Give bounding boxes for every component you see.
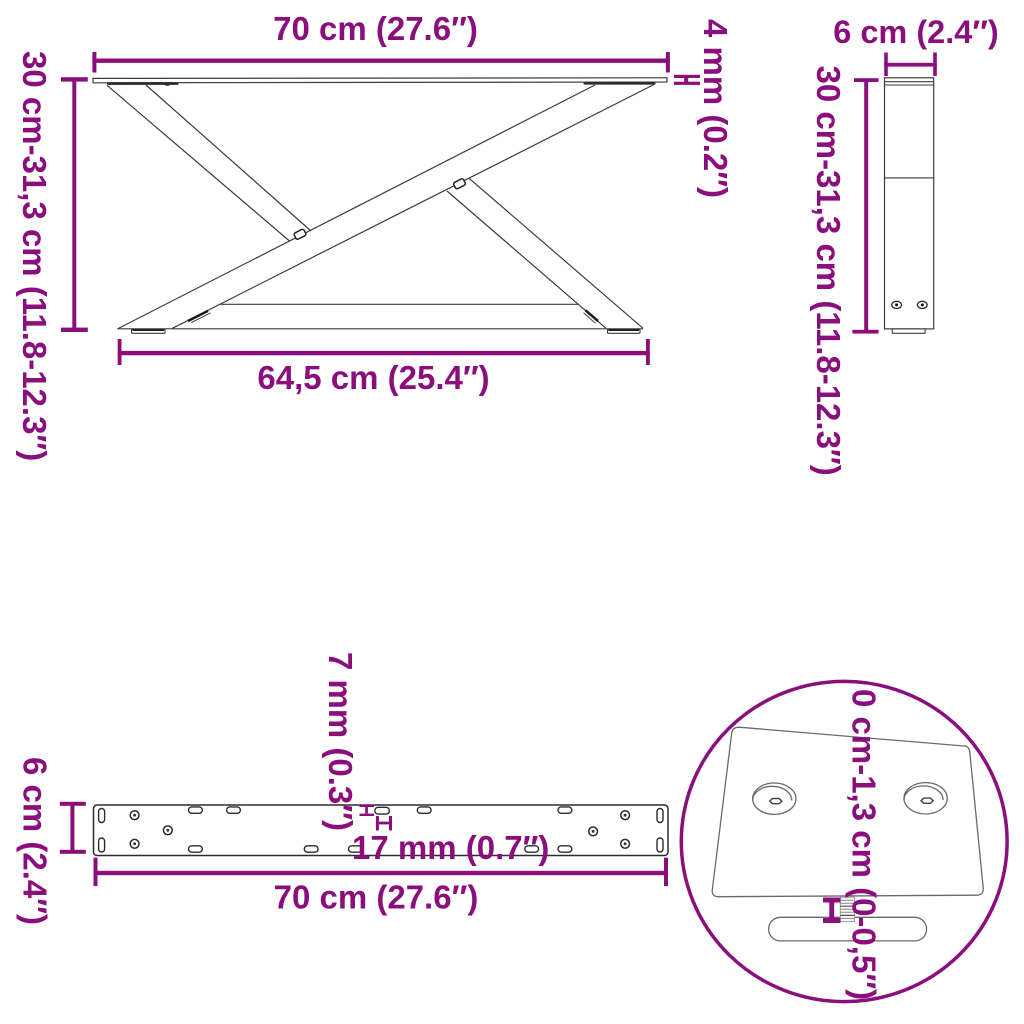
svg-text:30 cm-31,3 cm (11.8-12.3″): 30 cm-31,3 cm (11.8-12.3″) (810, 66, 847, 476)
svg-text:70 cm (27.6″): 70 cm (27.6″) (273, 10, 478, 47)
svg-text:0 cm-1,3 cm (0-0,5″): 0 cm-1,3 cm (0-0,5″) (846, 689, 883, 1000)
svg-text:6 cm (2.4″): 6 cm (2.4″) (17, 757, 54, 925)
svg-text:6 cm (2.4″): 6 cm (2.4″) (833, 14, 999, 50)
svg-text:17 mm (0.7″): 17 mm (0.7″) (352, 829, 549, 866)
svg-text:70 cm (27.6″): 70 cm (27.6″) (274, 879, 479, 916)
svg-text:64,5 cm (25.4″): 64,5 cm (25.4″) (257, 359, 489, 396)
svg-text:4 mm (0.2″): 4 mm (0.2″) (697, 19, 734, 198)
svg-text:7 mm (0.3″): 7 mm (0.3″) (322, 652, 359, 831)
svg-text:30 cm-31,3 cm (11.8-12.3″): 30 cm-31,3 cm (11.8-12.3″) (16, 51, 53, 461)
